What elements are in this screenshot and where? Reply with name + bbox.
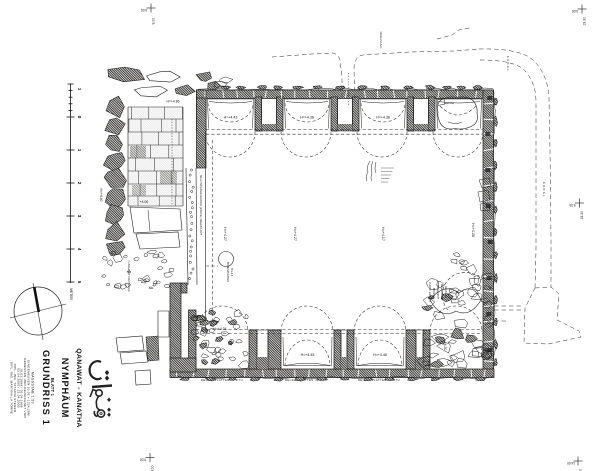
svg-text:9.00: 9.00 xyxy=(569,203,575,207)
svg-text:H=+4.28: H=+4.28 xyxy=(471,223,475,237)
svg-text:0.00: 0.00 xyxy=(141,8,147,12)
svg-text:5: 5 xyxy=(77,281,82,284)
svg-text:H=+4.38: H=+4.38 xyxy=(376,116,390,120)
svg-text:H=+4.45: H=+4.45 xyxy=(301,353,315,357)
svg-text:1: 1 xyxy=(77,149,82,152)
svg-text:0.00: 0.00 xyxy=(572,9,578,13)
svg-text:14.00: 14.00 xyxy=(151,465,155,471)
svg-text:9.00: 9.00 xyxy=(152,18,156,25)
svg-text:BODEN: BODEN xyxy=(432,288,435,297)
svg-text:QANAWAT - KANATHA: QANAWAT - KANATHA xyxy=(75,348,82,427)
svg-text:1: 1 xyxy=(77,88,82,91)
svg-text:ABGESTÜRZT: ABGESTÜRZT xyxy=(440,284,443,301)
svg-text:FUNDAMENT VORHANDEN: FUNDAMENT VORHANDEN xyxy=(127,261,130,292)
svg-text:+4.00: +4.00 xyxy=(140,200,149,204)
svg-text:0: 0 xyxy=(77,116,82,119)
svg-text:H=+4.48: H=+4.48 xyxy=(373,353,387,357)
svg-text:GRUNDRISS 1: GRUNDRISS 1 xyxy=(41,350,51,426)
svg-text:H=+4.27: H=+4.27 xyxy=(223,227,227,241)
svg-text:KANALZULAUF: KANALZULAUF xyxy=(379,31,382,49)
svg-text:UMGEKIPPT: UMGEKIPPT xyxy=(436,285,439,300)
svg-text:3: 3 xyxy=(77,215,82,218)
svg-text:+4.30: +4.30 xyxy=(443,342,447,351)
svg-text:BODENPLATTEN: BODENPLATTEN xyxy=(226,262,229,282)
svg-text:NYMPHÄUM: NYMPHÄUM xyxy=(60,358,70,419)
svg-text:KANAL: KANAL xyxy=(506,56,510,72)
svg-text:H=+4.27: H=+4.27 xyxy=(293,227,297,241)
svg-text:PLATTE, ERHÖHT: PLATTE, ERHÖHT xyxy=(428,282,431,303)
svg-text:H=+4.17: H=+4.17 xyxy=(381,227,385,241)
svg-text:H=+4.34: H=+4.34 xyxy=(213,327,226,331)
svg-text:0.00: 0.00 xyxy=(140,458,146,462)
svg-text:H=+4.2: H=+4.2 xyxy=(230,268,233,277)
svg-text:14.00: 14.00 xyxy=(567,461,575,465)
svg-text:19.30: 19.30 xyxy=(580,211,584,220)
svg-text:GEFALLEN: GEFALLEN xyxy=(444,286,447,299)
svg-text:METER: METER xyxy=(69,288,73,300)
svg-text:H=+4.43: H=+4.43 xyxy=(224,116,238,120)
svg-text:4: 4 xyxy=(77,248,82,251)
svg-text:H=+4.40: H=+4.40 xyxy=(99,188,103,201)
svg-text:BRUCHSTEINMAUERWERK (MÖRTEL) A: BRUCHSTEINMAUERWERK (MÖRTEL) ABGESTÜRZT xyxy=(199,175,202,236)
svg-text:H=+4.36: H=+4.36 xyxy=(300,116,314,120)
svg-text:DIPL.-ING. MARTINA LA TORRE: DIPL.-ING. MARTINA LA TORRE xyxy=(10,362,14,414)
svg-text:2: 2 xyxy=(77,182,82,185)
svg-text:19.30: 19.30 xyxy=(583,17,587,26)
svg-text:KANAL: KANAL xyxy=(542,182,546,198)
svg-text:H=+4.86: H=+4.86 xyxy=(166,100,179,104)
